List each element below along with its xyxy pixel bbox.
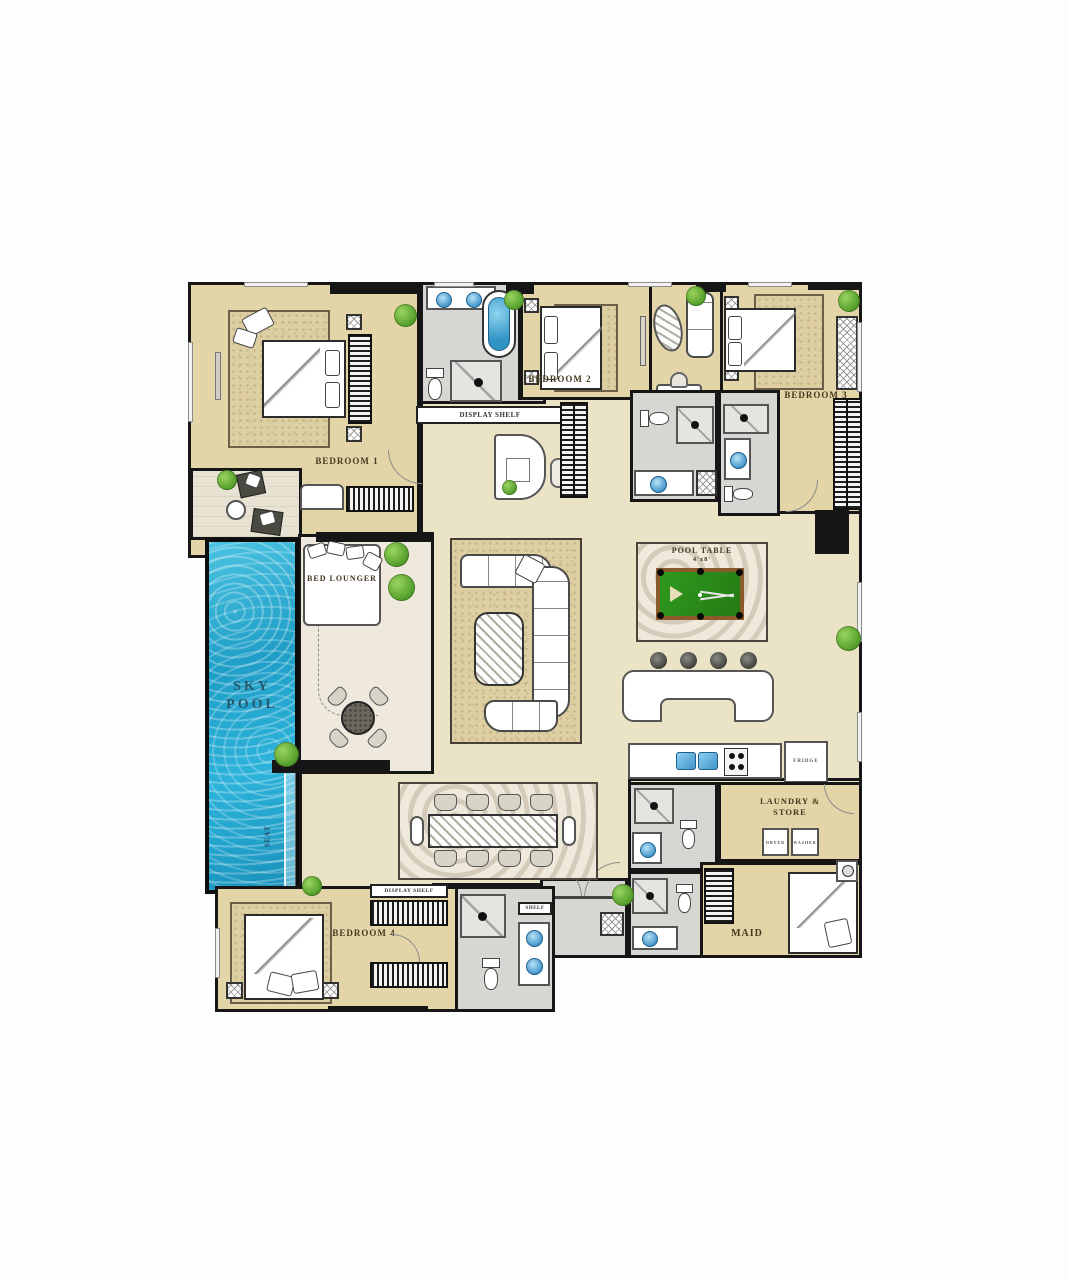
ball-rack <box>670 586 683 602</box>
dining-chair <box>498 850 521 867</box>
guest-bathA-vanity <box>632 832 662 864</box>
bed-fold <box>264 342 320 416</box>
kitchen-counter <box>628 743 782 779</box>
plant-icon <box>302 876 322 896</box>
bedroom1-lamp-table <box>346 314 362 330</box>
bedroom1-dresser <box>300 484 344 510</box>
bedroom1-wall-shelf <box>215 352 221 400</box>
window <box>434 282 474 287</box>
sink-icon <box>730 452 747 469</box>
shower-drain-icon <box>740 414 748 422</box>
dining-chair <box>530 850 553 867</box>
bedroom2-label: BEDROOM 2 <box>500 374 620 385</box>
shower-drain-icon <box>478 912 487 921</box>
sink-icon <box>526 930 543 947</box>
pool-pocket <box>657 569 664 576</box>
toilet-icon <box>733 488 753 500</box>
laundry-label: LAUNDRY & STORE <box>744 796 836 817</box>
pool-pocket <box>697 568 704 575</box>
display-shelf: DISPLAY SHELF <box>416 406 564 424</box>
shower-drain-icon <box>691 421 699 429</box>
plant-icon <box>838 290 860 312</box>
toilet-icon <box>682 829 695 849</box>
dining-end-chair <box>410 816 424 846</box>
dining-chair <box>498 794 521 811</box>
water-heater <box>836 860 858 882</box>
guest-bathB-vanity <box>632 926 678 950</box>
hall-wardrobe <box>560 402 588 498</box>
bedroom4-wardrobe <box>370 962 448 988</box>
dining-table <box>428 814 558 848</box>
plant-icon <box>274 742 299 767</box>
sink-icon <box>650 476 667 493</box>
bedroom4-wardrobe <box>370 900 448 926</box>
terrace-path <box>318 626 378 716</box>
fridge-label: FRIDGE <box>793 759 818 765</box>
bar-stool <box>710 652 727 669</box>
bed-lounger-label: BED LOUNGER <box>305 574 379 584</box>
plant-icon <box>502 480 517 495</box>
dining-chair <box>466 794 489 811</box>
dryer: DRYER <box>762 828 789 856</box>
window <box>748 282 792 287</box>
console-inset <box>506 458 530 482</box>
plant-icon <box>836 626 861 651</box>
lounger-towel <box>345 545 365 560</box>
sink-icon <box>640 842 656 858</box>
maid-label: MAID <box>712 928 782 941</box>
bedroom4-vanity <box>518 922 550 986</box>
pool-pocket <box>657 612 664 619</box>
cue-ball <box>698 593 702 597</box>
pool-pocket <box>736 569 743 576</box>
shelf-box: SHELF <box>518 902 552 915</box>
shower-drain-icon <box>646 892 654 900</box>
pool-seat-ledge <box>284 756 296 890</box>
toilet-icon <box>724 486 733 502</box>
bar-stool <box>740 652 757 669</box>
pool-pocket <box>736 612 743 619</box>
bedroom4-lamp-table <box>322 982 339 999</box>
plant-icon <box>504 290 524 310</box>
pool-table <box>656 568 744 620</box>
maid-wardrobe <box>704 868 734 924</box>
bedroom1-bed <box>262 340 346 418</box>
header-wall <box>808 282 862 290</box>
toilet-icon <box>484 968 498 990</box>
bath2-vanity <box>634 470 694 496</box>
kitchen-sink-icon <box>698 752 718 770</box>
display-shelf-label: DISPLAY SHELF <box>384 888 433 894</box>
plant-icon <box>388 574 415 601</box>
plant-icon <box>394 304 417 327</box>
pool-table-size-label: 4'x8' <box>636 556 768 564</box>
terrace-round-table <box>341 701 375 735</box>
toilet-icon <box>678 893 691 913</box>
dining-chair <box>530 794 553 811</box>
bedroom4-lamp-table <box>226 982 243 999</box>
bed-pillow <box>290 970 319 994</box>
window <box>188 342 193 422</box>
bed-fold <box>250 918 320 974</box>
header-wall <box>328 1006 428 1012</box>
bedroom4-bed <box>244 914 324 1000</box>
toilet-icon <box>426 368 444 378</box>
plant-icon <box>384 542 409 567</box>
window <box>215 928 220 978</box>
bedroom3-bed <box>724 308 796 372</box>
sink-icon <box>642 931 658 947</box>
sink-icon <box>526 958 543 975</box>
coffee-table <box>474 612 524 686</box>
fridge: FRIDGE <box>784 741 828 783</box>
sky-pool-label: SKY POOL <box>205 678 299 713</box>
dryer-label: DRYER <box>766 840 785 845</box>
toilet-icon <box>680 820 697 829</box>
stove-icon <box>724 748 748 776</box>
bed-fold <box>744 310 796 370</box>
display-shelf-label: DISPLAY SHELF <box>459 411 520 419</box>
kitchen-sink-icon <box>676 752 696 770</box>
bedroom1-side-wardrobe <box>348 334 372 424</box>
sitting-desk-chair <box>670 372 688 388</box>
pool-pocket <box>697 613 704 620</box>
dining-chair <box>434 850 457 867</box>
maid-bed <box>788 872 858 954</box>
bedroom1-wardrobe <box>346 486 414 512</box>
plant-icon <box>686 286 706 306</box>
shower-drain-icon <box>474 378 483 387</box>
bath3-vanity <box>724 438 751 480</box>
plant-icon <box>217 470 237 490</box>
bed-pillow <box>728 342 742 366</box>
toilet-icon <box>482 958 500 968</box>
bar-notch <box>660 698 736 722</box>
shower-drain-icon <box>650 802 658 810</box>
pool-seat-label: SEAT <box>264 806 273 866</box>
bedroom3-wardrobe <box>833 398 862 510</box>
sink-icon <box>466 292 482 308</box>
floor-plan: SKY POOL SEAT BEDROOM 1 BED LOUNGER <box>188 282 862 1012</box>
bedroom1-lamp-table <box>346 426 362 442</box>
column-block <box>815 510 849 554</box>
bedroom3-cabinet <box>836 316 858 390</box>
pool-table-label: POOL TABLE <box>636 546 768 556</box>
window <box>857 322 862 392</box>
window <box>628 282 672 287</box>
service-shaft <box>600 912 624 936</box>
bed-pillow <box>544 316 558 344</box>
shelf-label: SHELF <box>526 906 545 911</box>
sitting-console <box>640 316 646 366</box>
floor-plan-page: SKY POOL SEAT BEDROOM 1 BED LOUNGER <box>0 0 1067 1280</box>
bed-pillow <box>325 382 340 408</box>
toilet-icon <box>428 378 442 400</box>
bar-counter <box>622 670 774 722</box>
wardrobe-divider <box>573 404 575 496</box>
dining-chair <box>434 794 457 811</box>
bed-pillow <box>325 350 340 376</box>
living-sofa-right <box>532 566 570 718</box>
deck-table <box>226 500 246 520</box>
bedroom4-label: BEDROOM 4 <box>328 928 400 939</box>
dining-chair <box>466 850 489 867</box>
header-wall <box>330 282 420 294</box>
sink-icon <box>436 292 452 308</box>
service-shaft <box>696 470 717 496</box>
living-sofa-bottom <box>484 700 558 732</box>
display-shelf: DISPLAY SHELF <box>370 884 448 898</box>
washer-label: WASHER <box>793 840 816 845</box>
dining-end-chair <box>562 816 576 846</box>
toilet-icon <box>649 412 669 425</box>
toilet-icon <box>676 884 693 893</box>
wardrobe-divider <box>846 400 848 508</box>
plant-icon <box>612 884 634 906</box>
bar-stool <box>680 652 697 669</box>
bed-pillow <box>728 316 742 340</box>
bar-stool <box>650 652 667 669</box>
toilet-icon <box>640 410 649 427</box>
window <box>244 282 308 287</box>
window <box>857 712 862 762</box>
bed-pillow <box>824 918 853 948</box>
heater-drum-icon <box>842 865 854 877</box>
bedroom2-lamp-table <box>524 298 539 313</box>
washer: WASHER <box>791 828 819 856</box>
